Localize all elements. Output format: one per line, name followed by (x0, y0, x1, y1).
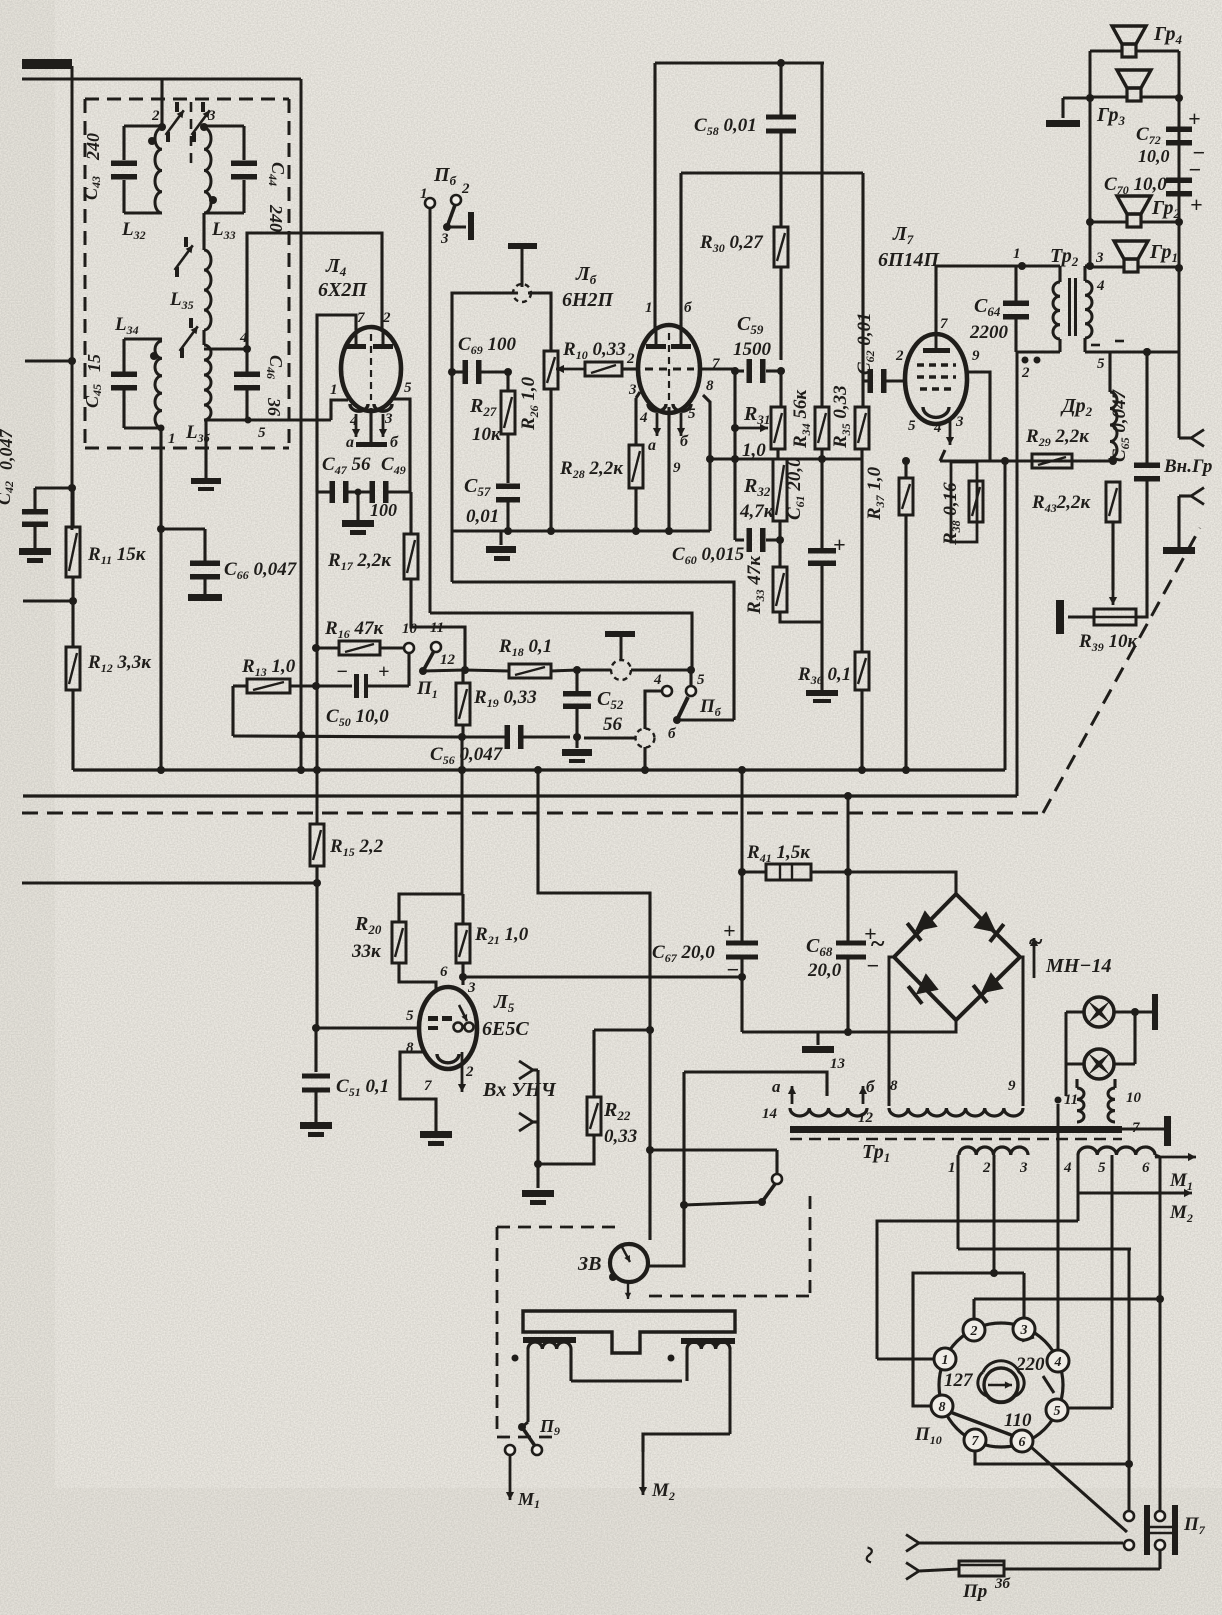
svg-text:5: 5 (688, 406, 696, 422)
svg-text:4: 4 (1063, 1160, 1072, 1176)
svg-text:+: + (723, 918, 736, 943)
svg-text:С58 0,01: С58 0,01 (694, 115, 757, 138)
svg-text:10,0: 10,0 (1138, 146, 1170, 166)
svg-text:С47 56: С47 56 (322, 454, 371, 477)
svg-text:б: б (684, 300, 692, 316)
svg-text:5: 5 (1054, 1404, 1061, 1419)
svg-text:6: 6 (1019, 1435, 1026, 1450)
svg-text:100: 100 (370, 500, 397, 520)
svg-text:1: 1 (330, 382, 338, 398)
svg-text:С69 100: С69 100 (458, 334, 516, 357)
svg-text:220: 220 (1015, 1354, 1045, 1375)
svg-text:R41 1,5к: R41 1,5к (746, 842, 811, 865)
svg-text:5: 5 (258, 425, 266, 441)
svg-text:С56 0,047: С56 0,047 (430, 744, 504, 767)
svg-text:−: − (726, 957, 739, 982)
svg-text:12: 12 (440, 652, 456, 668)
svg-text:6: 6 (440, 964, 448, 980)
svg-text:3: 3 (955, 414, 964, 430)
svg-text:2: 2 (970, 1324, 978, 1339)
svg-text:240: 240 (266, 204, 286, 232)
svg-text:5: 5 (908, 418, 916, 434)
svg-text:2200: 2200 (969, 322, 1009, 343)
svg-text:R35 0,33: R35 0,33 (830, 385, 853, 449)
svg-text:R15 2,2: R15 2,2 (329, 836, 384, 859)
svg-text:5: 5 (697, 672, 705, 688)
svg-text:3: 3 (384, 411, 393, 427)
svg-text:МН−14: МН−14 (1045, 955, 1111, 977)
svg-text:R432,2к: R432,2к (1031, 492, 1091, 515)
svg-text:9: 9 (972, 348, 980, 364)
svg-text:~: ~ (870, 929, 885, 958)
svg-text:4: 4 (933, 420, 942, 436)
svg-text:3: 3 (1095, 250, 1104, 266)
svg-text:7: 7 (940, 316, 948, 332)
svg-text:б: б (668, 726, 676, 742)
svg-text:С60 0,015: С60 0,015 (672, 544, 745, 567)
svg-text:2: 2 (465, 1064, 474, 1080)
svg-text:6Е5С: 6Е5С (482, 1018, 529, 1040)
svg-text:R30 0,27: R30 0,27 (699, 232, 764, 255)
svg-text:33к: 33к (351, 941, 382, 962)
svg-text:+: + (378, 661, 389, 683)
svg-text:R26 1,0: R26 1,0 (518, 376, 541, 431)
svg-text:R33 47к: R33 47к (744, 555, 767, 615)
svg-text:Вx УНЧ: Вx УНЧ (482, 1079, 557, 1101)
svg-text:56: 56 (603, 714, 623, 735)
svg-text:3: 3 (628, 382, 637, 398)
svg-text:R10 0,33: R10 0,33 (562, 339, 626, 362)
svg-text:2: 2 (1021, 365, 1030, 381)
svg-text:R16 47к: R16 47к (324, 618, 384, 641)
svg-text:7: 7 (712, 356, 720, 372)
svg-text:3: 3 (1019, 1160, 1028, 1176)
svg-text:6П14П: 6П14П (878, 249, 941, 271)
svg-text:4: 4 (1096, 278, 1105, 294)
svg-text:7: 7 (424, 1078, 432, 1094)
svg-text:0,01: 0,01 (466, 506, 499, 527)
svg-text:Пр: Пр (962, 1581, 987, 1602)
svg-text:8: 8 (890, 1078, 898, 1094)
svg-text:1: 1 (1013, 246, 1021, 262)
svg-text:4: 4 (639, 410, 648, 426)
svg-text:б: б (390, 434, 399, 451)
svg-text:2: 2 (895, 348, 904, 364)
svg-text:8: 8 (406, 1040, 414, 1056)
svg-text:5: 5 (1098, 1160, 1106, 1176)
svg-text:a: a (346, 434, 354, 451)
svg-text:R11 15к: R11 15к (87, 544, 147, 567)
svg-text:2: 2 (626, 351, 635, 367)
svg-text:2: 2 (982, 1160, 991, 1176)
svg-text:15: 15 (84, 354, 104, 372)
svg-text:1: 1 (420, 186, 428, 202)
svg-text:4: 4 (1054, 1355, 1062, 1370)
svg-text:14: 14 (762, 1106, 778, 1122)
svg-text:127: 127 (944, 1370, 974, 1391)
svg-text:240: 240 (83, 133, 103, 161)
svg-text:С70 10,0: С70 10,0 (1104, 174, 1167, 197)
svg-text:С67 20,0: С67 20,0 (652, 942, 715, 965)
svg-text:7: 7 (972, 1434, 980, 1449)
svg-text:8: 8 (939, 1400, 946, 1415)
svg-text:12: 12 (858, 1110, 874, 1126)
svg-text:2: 2 (461, 181, 470, 197)
svg-text:110: 110 (1004, 1410, 1032, 1431)
svg-text:4,7к: 4,7к (739, 501, 775, 522)
svg-text:20,0: 20,0 (807, 960, 842, 981)
svg-text:3: 3 (467, 980, 476, 996)
svg-text:С50 10,0: С50 10,0 (326, 706, 389, 729)
svg-text:R28 2,2к: R28 2,2к (559, 458, 624, 481)
svg-text:3: 3 (440, 231, 449, 247)
svg-text:Вн.Гр: Вн.Гр (1163, 456, 1212, 477)
svg-text:6Х2П: 6Х2П (318, 279, 368, 301)
svg-text:+: + (1190, 192, 1203, 217)
svg-text:С66 0,047: С66 0,047 (224, 559, 298, 582)
svg-text:R36 0,1: R36 0,1 (797, 664, 851, 687)
svg-text:R17 2,2к: R17 2,2к (327, 550, 392, 573)
svg-text:5: 5 (404, 380, 412, 396)
svg-text:0,33: 0,33 (604, 1126, 637, 1147)
svg-text:7: 7 (357, 310, 365, 326)
svg-text:1: 1 (168, 431, 176, 447)
svg-text:1500: 1500 (733, 339, 772, 360)
svg-text:a: a (772, 1077, 781, 1096)
svg-text:13: 13 (830, 1056, 846, 1072)
svg-text:R18 0,1: R18 0,1 (498, 636, 552, 659)
svg-text:9: 9 (1008, 1078, 1016, 1094)
svg-text:−: − (1188, 157, 1201, 182)
svg-text:+: + (1188, 106, 1201, 131)
svg-text:1: 1 (942, 1353, 949, 1368)
svg-text:2: 2 (151, 108, 160, 124)
svg-text:R38 0,16: R38 0,16 (940, 482, 963, 546)
svg-text:С61 20,0: С61 20,0 (784, 457, 807, 520)
svg-text:+: + (833, 532, 846, 557)
svg-text:3б: 3б (994, 1576, 1011, 1592)
svg-text:С42: С42 (0, 481, 16, 505)
svg-text:R12 3,3к: R12 3,3к (87, 652, 152, 675)
svg-text:R21 1,0: R21 1,0 (474, 924, 529, 947)
svg-text:1: 1 (948, 1160, 956, 1176)
svg-text:4: 4 (653, 672, 662, 688)
svg-text:8: 8 (706, 378, 714, 394)
svg-text:10к: 10к (472, 424, 502, 445)
svg-text:10: 10 (1126, 1090, 1142, 1106)
svg-text:1: 1 (645, 300, 653, 316)
svg-text:R19 0,33: R19 0,33 (473, 687, 537, 710)
svg-text:С65 0,047: С65 0,047 (1109, 388, 1132, 462)
svg-text:6: 6 (1142, 1160, 1150, 1176)
svg-text:С51 0,1: С51 0,1 (336, 1076, 389, 1099)
svg-text:5: 5 (1097, 356, 1105, 372)
svg-text:5: 5 (406, 1008, 414, 1024)
svg-text:0,047: 0,047 (0, 429, 16, 471)
svg-text:3: 3 (1020, 1323, 1028, 1338)
svg-text:a: a (648, 437, 656, 454)
svg-text:36: 36 (264, 397, 284, 416)
svg-text:11: 11 (1064, 1092, 1078, 1108)
svg-text:R29 2,2к: R29 2,2к (1025, 426, 1090, 449)
svg-text:R34 56к: R34 56к (790, 389, 813, 449)
svg-text:9: 9 (673, 460, 681, 476)
svg-text:R39 10к: R39 10к (1078, 631, 1138, 654)
svg-text:R13 1,0: R13 1,0 (241, 656, 296, 679)
svg-text:С62 0,01: С62 0,01 (854, 312, 877, 375)
svg-text:ЗВ: ЗВ (577, 1253, 602, 1275)
svg-text:−: − (336, 661, 348, 683)
svg-text:6Н2П: 6Н2П (562, 289, 615, 311)
svg-text:R37 1,0: R37 1,0 (864, 466, 887, 521)
